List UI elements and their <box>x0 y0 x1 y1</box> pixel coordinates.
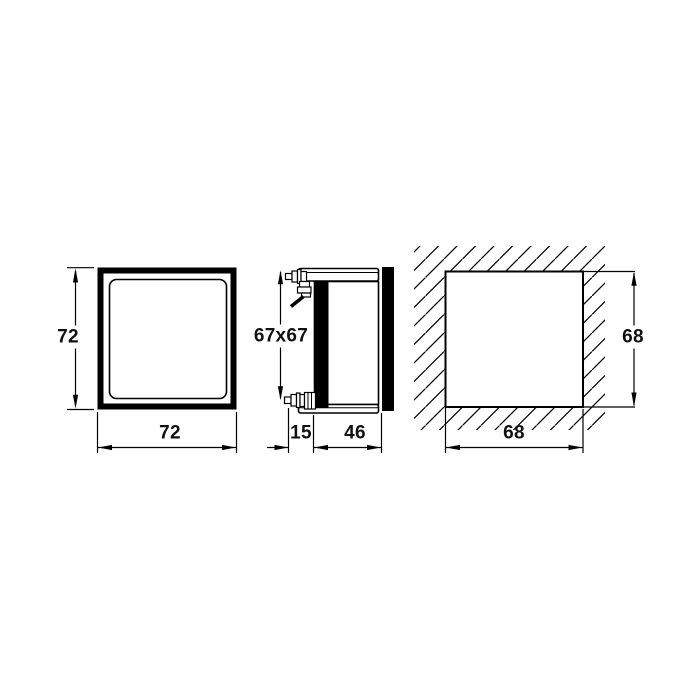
front-width-dimension-label: 72 <box>159 424 181 443</box>
side-body-depth-label: 46 <box>344 424 366 443</box>
cutout-square <box>446 272 584 408</box>
panel-cutout-drawing <box>414 246 637 453</box>
front-bezel-frame <box>101 271 234 407</box>
front-view-drawing <box>67 268 237 453</box>
cutout-width-dimension-label: 68 <box>503 424 525 443</box>
side-view-drawing <box>267 267 394 453</box>
bottom-clamp-screw <box>285 393 316 410</box>
front-height-dimension-label: 72 <box>54 326 82 349</box>
side-front-depth-label: 15 <box>290 424 312 443</box>
cutout-height-dimension-label: 68 <box>619 326 647 349</box>
dimension-drawing <box>0 0 700 700</box>
side-face-size-label: 67x67 <box>251 325 311 348</box>
technical-drawing-canvas: 72 72 67x67 15 46 68 68 <box>0 0 700 700</box>
side-front-bezel <box>382 267 394 411</box>
side-mounting-clamp-bar <box>315 282 329 409</box>
